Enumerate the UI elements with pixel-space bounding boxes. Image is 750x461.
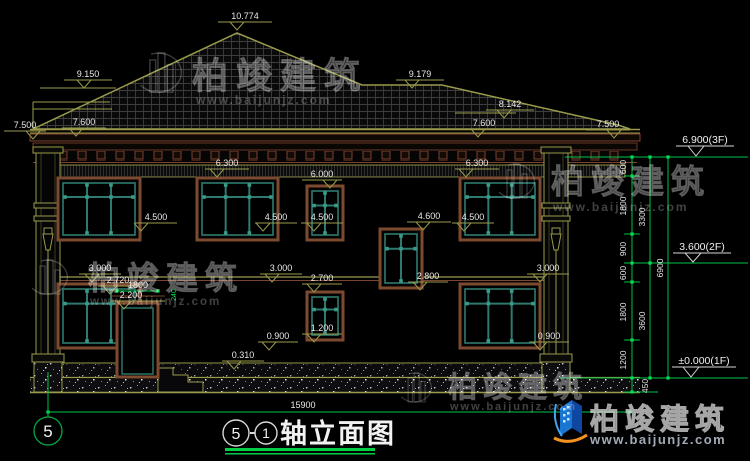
title-axis-end: 1 <box>262 425 270 441</box>
dim-tick <box>648 261 651 264</box>
brand-url: www.baijunjz.com <box>589 432 726 447</box>
title-axis-start: 5 <box>232 426 241 443</box>
window-stair <box>380 229 422 288</box>
elevation-dim-text: 0.310 <box>232 350 255 360</box>
watermark-url: www.baijunjz.com <box>89 296 221 308</box>
elevation-dim-text: 8.142 <box>499 99 522 109</box>
dim-tick <box>630 261 633 264</box>
level-mark-3.600(2F): 3.600(2F) <box>624 241 748 263</box>
watermark-name: 柏竣建筑 <box>448 370 588 404</box>
elevation-dim-text: 3.000 <box>537 263 560 273</box>
elevation-dim-text: 7.600 <box>473 118 496 128</box>
overall-dim-text: 15900 <box>290 400 315 410</box>
elevation-dim-text: 4.500 <box>145 212 168 222</box>
window-2f-left <box>58 178 140 240</box>
elevation-dim-text: 9.179 <box>409 69 432 79</box>
watermark-url: www.baijunjz.com <box>552 200 689 214</box>
dim-tick <box>648 155 651 158</box>
elevation-dim-text: 1.200 <box>311 323 334 333</box>
dim-tick <box>630 232 633 235</box>
dim-tick <box>630 338 633 341</box>
elevation-dim-0.900: 0.900 <box>258 331 298 350</box>
dim-tick <box>666 376 669 379</box>
dim-tick <box>630 155 633 158</box>
chain-dim-text: 600 <box>618 266 628 280</box>
dim-tick <box>666 155 669 158</box>
elevation-dim-text: 7.600 <box>73 117 96 127</box>
frieze-band <box>45 165 625 177</box>
elevation-dim-text: 9.150 <box>77 69 100 79</box>
watermark-name: 柏竣建筑 <box>551 163 711 200</box>
chain-dim-text: 1800 <box>618 302 628 321</box>
window-2f-mid <box>197 178 278 240</box>
elevation-dim-text: 4.500 <box>462 212 485 222</box>
elevation-dim-text: 6.300 <box>466 158 489 168</box>
elevation-dim-text: 2.700 <box>311 273 334 283</box>
elevation-dim-text: 6.000 <box>311 169 334 179</box>
window-2f-right <box>460 178 540 240</box>
cad-linework: 15900 5 5 1 轴立面图 柏竣建筑 www.baiju <box>0 0 750 461</box>
watermark-name: 柏竣建筑 <box>88 260 244 296</box>
elevation-dim-2.700: 2.700 <box>302 273 342 292</box>
watermark-url: www.baijunjz.com <box>195 93 332 107</box>
elevation-dim-9.150: 9.150 <box>64 69 112 88</box>
elevation-dim-text: 0.900 <box>538 331 561 341</box>
drawing-title: 5 1 轴立面图 <box>223 418 396 455</box>
elevation-dim-text: 0.900 <box>267 331 290 341</box>
window-1f-right <box>460 284 540 348</box>
elevation-dim-10.774: 10.774 <box>218 11 272 30</box>
chain-dim-text: 6900 <box>655 258 665 277</box>
dentil-row <box>55 151 622 161</box>
elevation-dim-text: 7.500 <box>14 120 37 130</box>
level-mark-±0.000(1F): ±0.000(1F) <box>560 355 748 378</box>
watermark-name: 柏竣建筑 <box>192 55 368 96</box>
elevation-dim-text: 7.500 <box>597 119 620 129</box>
elevation-dim-text: 3.000 <box>270 263 293 273</box>
dim-tick <box>630 376 633 379</box>
elevation-dim-text: 4.600 <box>418 211 441 221</box>
level-mark-text: 6.900(3F) <box>682 134 728 146</box>
elevation-dim-text: 4.500 <box>311 212 334 222</box>
elevation-dim-text: 2.800 <box>417 271 440 281</box>
elevation-drawing: 15900 5 5 1 轴立面图 柏竣建筑 www.baiju <box>0 0 750 461</box>
chain-dim-text: 900 <box>618 242 628 256</box>
entry-door <box>117 303 158 377</box>
level-mark-text: ±0.000(1F) <box>678 355 729 367</box>
chain-dim-text: 450 <box>640 379 650 393</box>
chain-dim-text: 1200 <box>618 350 628 369</box>
dim-tick <box>630 390 633 393</box>
watermark-url: www.baijunjz.com <box>449 401 577 413</box>
elevation-dim-text: 6.300 <box>216 158 239 168</box>
brand-name: 柏竣建筑 <box>590 402 730 436</box>
elevation-dim-text: 10.774 <box>231 11 259 21</box>
dim-tick <box>630 280 633 283</box>
elevation-dim-text: 4.500 <box>265 212 288 222</box>
chain-dim-text: 3600 <box>637 311 647 330</box>
page-title: 轴立面图 <box>280 418 396 449</box>
elevation-dim-4.600: 4.600 <box>407 211 451 230</box>
elevation-dim-3.000: 3.000 <box>260 263 302 282</box>
brand-footer: 柏竣建筑 www.baijunjz.com <box>554 400 730 447</box>
level-mark-text: 3.600(2F) <box>679 241 725 253</box>
axis-bubble-label: 5 <box>43 422 52 441</box>
